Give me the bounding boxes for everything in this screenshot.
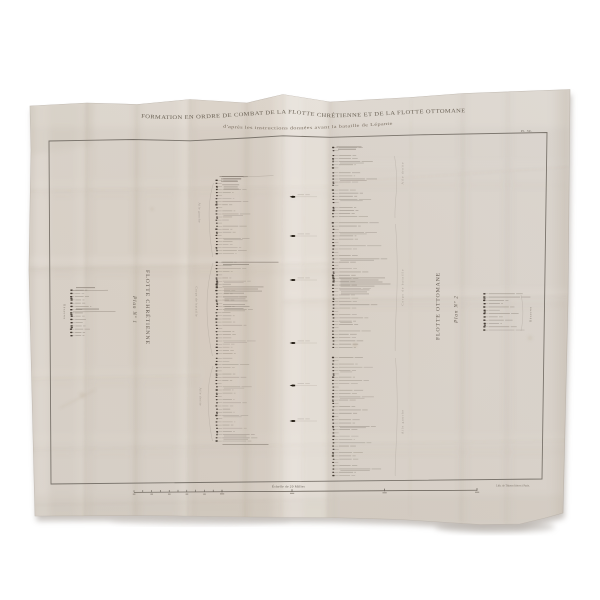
svg-text:Lith. de Thierry frères à Pari: Lith. de Thierry frères à Paris. [496,485,530,488]
svg-text:Corps de bataille: Corps de bataille [195,287,199,318]
svg-text:Aile droite: Aile droite [199,388,203,407]
svg-text:Aile gauche: Aile gauche [198,203,202,224]
svg-text:Aile droite: Aile droite [401,162,405,185]
svg-text:Corps de bataille: Corps de bataille [401,269,405,306]
svg-text:Pl. 39.: Pl. 39. [521,129,532,133]
svg-text:Réserve: Réserve [63,304,67,320]
svg-text:Réserve: Réserve [529,306,533,322]
svg-text:Plan Nº 2: Plan Nº 2 [454,296,460,324]
svg-text:FLOTTE OTTOMANE: FLOTTE OTTOMANE [436,272,442,340]
svg-text:Plan Nº 1: Plan Nº 1 [131,295,137,323]
svg-text:Aile gauche: Aile gauche [401,409,405,434]
svg-text:Échelle de 20 Milles: Échelle de 20 Milles [272,483,305,488]
svg-text:FLOTTE CHRÉTIENNE: FLOTTE CHRÉTIENNE [144,270,152,345]
